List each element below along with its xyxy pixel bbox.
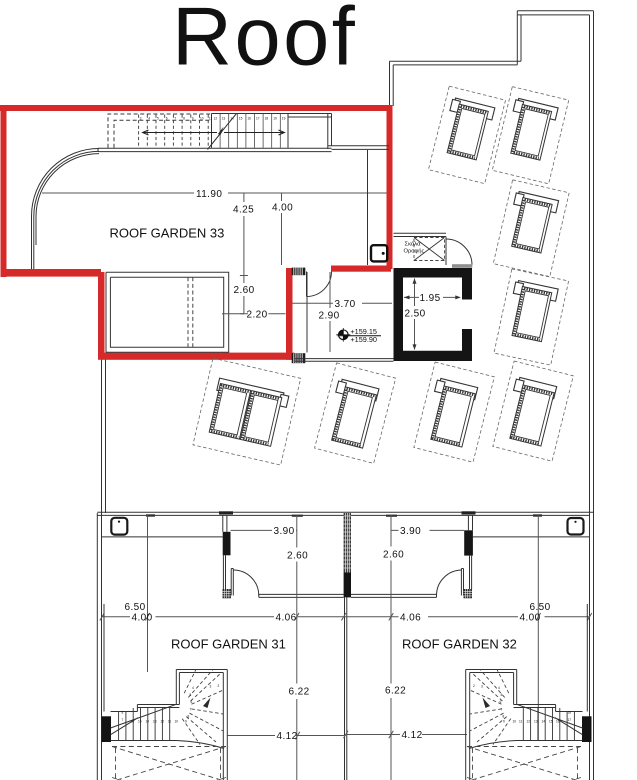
- svg-text:3: 3: [210, 685, 212, 689]
- svg-text:5: 5: [501, 693, 503, 697]
- svg-text:15: 15: [549, 720, 553, 724]
- svg-text:6.22: 6.22: [385, 686, 406, 697]
- svg-text:6: 6: [166, 117, 168, 121]
- svg-text:4.12: 4.12: [277, 731, 298, 742]
- svg-text:Σκάλα: Σκάλα: [405, 241, 422, 248]
- svg-text:4.06: 4.06: [400, 613, 421, 624]
- svg-text:+159.90: +159.90: [350, 335, 377, 344]
- svg-text:4: 4: [498, 686, 500, 690]
- svg-text:6: 6: [191, 700, 193, 704]
- svg-text:8: 8: [503, 715, 505, 719]
- svg-text:7: 7: [190, 708, 192, 712]
- svg-text:9: 9: [192, 117, 194, 121]
- svg-text:13: 13: [222, 117, 226, 121]
- svg-text:7: 7: [501, 708, 503, 712]
- svg-text:6.50: 6.50: [125, 602, 146, 613]
- svg-text:7: 7: [174, 117, 176, 121]
- svg-text:3.90: 3.90: [274, 526, 295, 537]
- svg-text:3: 3: [481, 685, 483, 689]
- svg-text:6: 6: [500, 700, 502, 704]
- svg-text:3.90: 3.90: [400, 526, 421, 537]
- svg-text:18: 18: [265, 117, 269, 121]
- svg-text:ROOF GARDEN 32: ROOF GARDEN 32: [402, 637, 517, 652]
- svg-text:11: 11: [209, 117, 213, 121]
- svg-text:9: 9: [185, 720, 187, 724]
- svg-text:2.60: 2.60: [234, 285, 255, 296]
- svg-text:2: 2: [473, 684, 475, 688]
- svg-text:2.60: 2.60: [383, 550, 404, 561]
- svg-text:18: 18: [568, 711, 572, 715]
- svg-text:2.50: 2.50: [405, 309, 426, 320]
- svg-text:4.00: 4.00: [520, 613, 541, 624]
- svg-text:4.25: 4.25: [233, 205, 254, 216]
- svg-text:3: 3: [140, 117, 142, 121]
- svg-text:4.00: 4.00: [272, 203, 293, 214]
- svg-text:2.60: 2.60: [287, 551, 308, 562]
- svg-text:12: 12: [214, 117, 218, 121]
- svg-text:11: 11: [168, 720, 172, 724]
- svg-text:7: 7: [122, 718, 124, 722]
- svg-text:4: 4: [192, 686, 194, 690]
- svg-text:10: 10: [513, 720, 517, 724]
- svg-text:Οροφής: Οροφής: [404, 247, 425, 254]
- svg-text:11: 11: [519, 720, 523, 724]
- svg-text:1.95: 1.95: [420, 293, 441, 304]
- svg-text:17: 17: [256, 117, 260, 121]
- svg-text:5: 5: [190, 693, 192, 697]
- svg-text:9: 9: [503, 720, 505, 724]
- svg-text:10: 10: [175, 720, 179, 724]
- svg-text:10: 10: [200, 117, 204, 121]
- svg-text:Roof: Roof: [172, 0, 357, 83]
- svg-text:17: 17: [568, 718, 572, 722]
- svg-text:15: 15: [138, 720, 142, 724]
- svg-text:2.20: 2.20: [247, 310, 268, 321]
- svg-text:8: 8: [122, 711, 124, 715]
- svg-text:8: 8: [183, 117, 185, 121]
- svg-text:2.90: 2.90: [319, 311, 340, 322]
- svg-text:4: 4: [148, 117, 150, 121]
- svg-text:16: 16: [247, 117, 251, 121]
- svg-text:8: 8: [188, 715, 190, 719]
- svg-text:6.50: 6.50: [530, 602, 551, 613]
- svg-text:12: 12: [161, 720, 165, 724]
- svg-text:14: 14: [542, 720, 546, 724]
- svg-text:3.70: 3.70: [335, 299, 356, 310]
- svg-text:ROOF GARDEN 33: ROOF GARDEN 33: [110, 226, 225, 241]
- svg-text:15: 15: [239, 117, 243, 121]
- svg-text:14: 14: [146, 720, 150, 724]
- svg-text:6.22: 6.22: [289, 687, 310, 698]
- svg-text:5: 5: [157, 117, 159, 121]
- svg-text:13: 13: [153, 720, 157, 724]
- svg-text:4.06: 4.06: [276, 613, 297, 624]
- svg-text:19: 19: [273, 117, 277, 121]
- svg-text:19: 19: [282, 117, 286, 121]
- svg-text:11.90: 11.90: [196, 189, 222, 200]
- svg-text:ROOF GARDEN 31: ROOF GARDEN 31: [171, 637, 286, 652]
- svg-text:13: 13: [534, 720, 538, 724]
- svg-text:4.12: 4.12: [402, 730, 423, 741]
- svg-text:4.00: 4.00: [132, 613, 153, 624]
- svg-text:2: 2: [218, 684, 220, 688]
- svg-text:12: 12: [527, 720, 531, 724]
